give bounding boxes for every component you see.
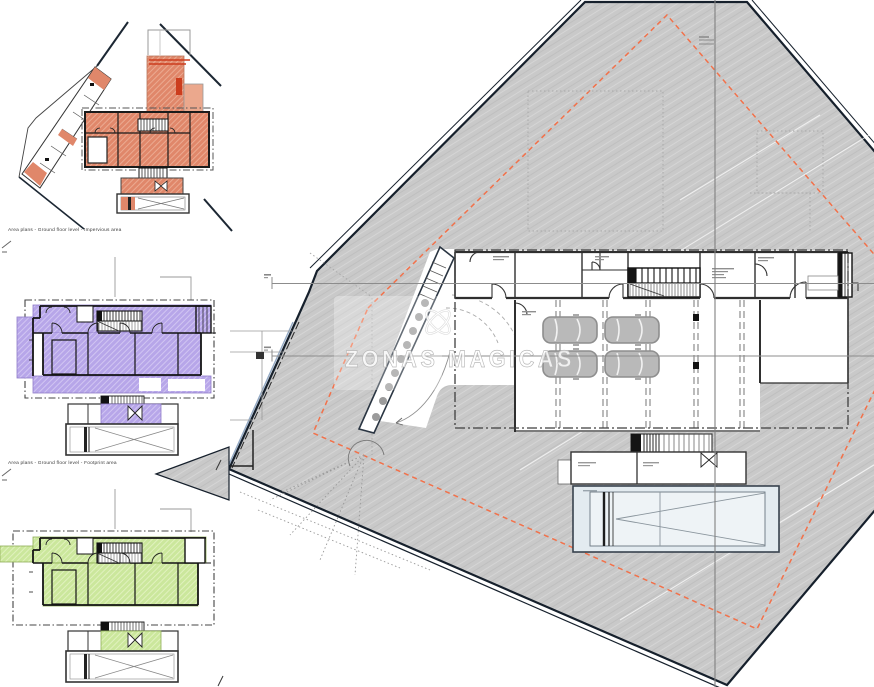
main-stair — [628, 268, 700, 297]
stair — [97, 543, 142, 563]
car — [605, 349, 659, 379]
diagram-footprint: Area plans - Ground floor level - Footpr… — [2, 241, 221, 470]
caption-impervious: Area plans - Ground floor level - Imperv… — [8, 227, 122, 233]
upper-stack — [147, 30, 203, 112]
annex-rooms — [571, 452, 746, 484]
annex — [558, 434, 779, 552]
column-marker — [693, 362, 699, 369]
car — [605, 315, 659, 345]
lower-assembly — [66, 396, 178, 455]
diagram-impervious: Area plans - Ground floor level - Imperv… — [8, 22, 232, 233]
lower-assembly — [66, 622, 178, 682]
architectural-sheet-svg: ZONAS MAGICAS — [0, 0, 874, 687]
watermark-text: ZONAS MAGICAS — [345, 346, 575, 373]
diagram-greenery — [0, 469, 223, 686]
caption-footprint: Area plans - Ground floor level - Footpr… — [8, 460, 117, 466]
car — [543, 315, 597, 345]
drawing-sheet: ZONAS MAGICAS — [0, 0, 874, 687]
column-marker — [693, 314, 699, 321]
stair — [97, 311, 142, 331]
site-plan: ZONAS MAGICAS — [156, 0, 874, 687]
main-bar — [85, 112, 209, 167]
pool — [573, 486, 779, 552]
annex-stair — [631, 434, 712, 452]
lower-assembly — [117, 168, 189, 213]
